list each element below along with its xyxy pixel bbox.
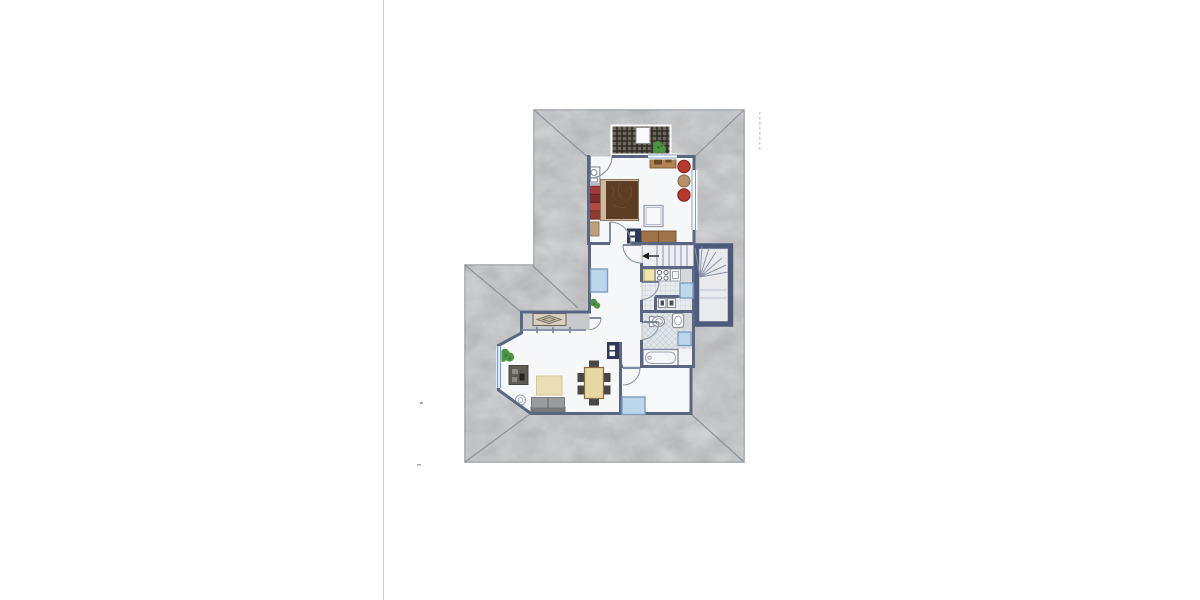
round-chairs-and-table [678, 160, 690, 201]
counter-unit [644, 269, 655, 281]
drawing-sheet [0, 0, 1200, 600]
bath-roof-window [678, 332, 691, 346]
stairwell-floor [699, 249, 728, 322]
wardrobe [589, 186, 601, 219]
chimney-block [607, 342, 620, 359]
floor-plan-canvas [0, 0, 1200, 600]
dining-chair [604, 386, 611, 395]
dining-table [585, 368, 604, 399]
loggia-sideboard [533, 314, 566, 326]
dining-chair [604, 373, 611, 382]
rug [537, 376, 563, 395]
dresser [642, 231, 677, 244]
double-bed [601, 180, 639, 221]
square-table [644, 206, 663, 227]
bathtub-icon [643, 350, 678, 367]
bedroom-right-window [691, 170, 698, 230]
kitchen-counter-gray [681, 268, 694, 283]
kitchen-fittings [644, 269, 681, 281]
cooktop-icon [656, 269, 671, 281]
red-chair-icon [678, 189, 690, 201]
washbasin-icon [673, 314, 684, 328]
utility-fixtures [659, 299, 676, 308]
roof-terrace [611, 125, 672, 156]
dining-chair [578, 386, 585, 395]
red-chair-icon [678, 160, 690, 172]
hall-roof-window [591, 269, 608, 292]
side-table-icon [678, 175, 690, 187]
chimney-block [627, 229, 641, 244]
dormer-bay-window [496, 346, 502, 388]
terrace-table [636, 128, 650, 144]
bedroom-top-window [648, 154, 677, 160]
tv-lowboard [509, 366, 528, 385]
sink-unit-icon [671, 269, 681, 281]
dining-chair [578, 373, 585, 382]
dining-chair [589, 399, 599, 406]
kitchen-roof-window [680, 283, 693, 298]
rear-room-roof-window [622, 397, 645, 415]
dining-chair [589, 361, 599, 368]
